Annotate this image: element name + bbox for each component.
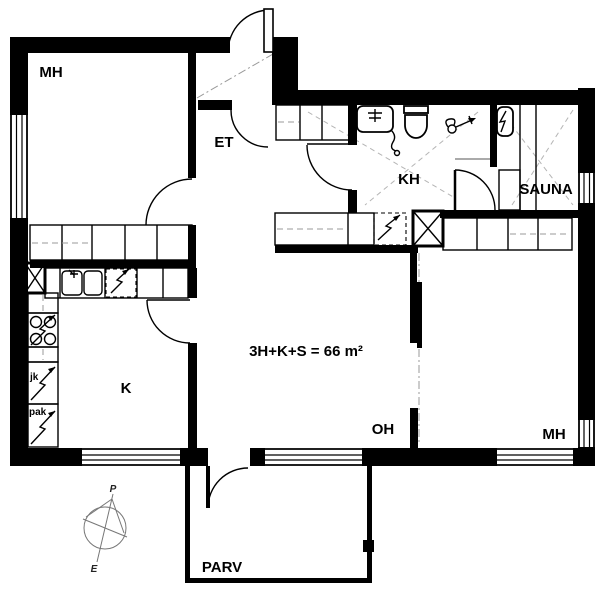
shower-icon	[446, 116, 476, 133]
kitchen-door	[147, 300, 190, 343]
room-label-bedroom-e: MH	[542, 426, 565, 443]
wall	[573, 448, 595, 466]
window	[579, 420, 594, 447]
area-label: 3H+K+S = 66 m²	[249, 343, 363, 360]
entry-sightline	[197, 50, 280, 98]
compass-north-label: P	[110, 484, 117, 495]
entry-door	[228, 9, 273, 52]
wall	[578, 88, 595, 173]
wall	[198, 100, 232, 110]
room-label-balcony: PARV	[202, 559, 242, 576]
entry-inner-door	[231, 110, 268, 147]
window	[579, 173, 594, 203]
freezer-label: pak	[29, 407, 47, 418]
wall	[440, 210, 578, 218]
room-label-bathroom: KH	[398, 171, 420, 188]
wall	[490, 105, 497, 167]
wall	[30, 260, 192, 268]
bathroom-door	[307, 144, 352, 190]
balcony-wall-post	[363, 540, 374, 552]
toilet-icon	[404, 106, 428, 138]
kitchen-counter	[45, 268, 188, 298]
wall	[188, 343, 197, 448]
wall	[410, 250, 417, 343]
window	[265, 449, 362, 465]
wall	[188, 268, 197, 298]
fridge-label: jk	[29, 372, 39, 383]
wall	[10, 37, 230, 53]
bathroom-fixtures	[357, 106, 490, 159]
wall	[348, 105, 357, 145]
bedroom-e-wardrobes	[443, 218, 572, 250]
floor-plan: MH ET KH SAUNA K OH MH PARV 3H+K+S = 66 …	[0, 0, 607, 590]
balcony-wall	[367, 466, 372, 583]
wall	[578, 203, 595, 420]
sauna-bench-step	[499, 170, 520, 210]
room-label-kitchen: K	[121, 380, 132, 397]
sink-icon	[357, 106, 400, 156]
wall	[410, 408, 418, 448]
window	[82, 449, 180, 465]
compass-south-label: E	[91, 564, 98, 575]
bedroom-nw-wardrobes	[30, 225, 192, 260]
room-label-living: OH	[372, 421, 395, 438]
doors	[146, 9, 495, 508]
window	[497, 449, 573, 465]
room-label-sauna: SAUNA	[519, 181, 573, 198]
stove-icon	[28, 313, 58, 347]
sauna-heater-icon	[497, 107, 513, 136]
wall	[362, 448, 497, 466]
balcony-door	[206, 466, 248, 508]
compass-rose: P E	[83, 484, 127, 575]
balcony-wall	[185, 578, 372, 583]
window	[11, 115, 27, 218]
fridge-unit	[28, 362, 58, 404]
wall	[298, 90, 578, 105]
duct-shaft	[413, 211, 443, 246]
windows	[11, 115, 594, 465]
bedroom-nw-door	[146, 179, 192, 225]
kitchen-tall-units	[28, 293, 58, 447]
balcony-wall	[185, 466, 190, 583]
wall	[250, 448, 265, 466]
wall	[272, 37, 298, 105]
sauna-door	[455, 170, 495, 210]
wall	[10, 218, 28, 466]
entry-closet	[276, 105, 349, 140]
sliding-door-leaf	[417, 282, 422, 348]
kitchen-fittings	[28, 268, 188, 447]
wall	[348, 190, 357, 213]
wall	[188, 53, 196, 178]
room-label-entry: ET	[214, 134, 233, 151]
wall	[180, 448, 208, 466]
hall-cabinet-row	[275, 213, 406, 245]
washing-machine-slot	[374, 213, 406, 245]
kitchen-sink-icon	[62, 270, 102, 295]
wall	[10, 448, 82, 466]
room-label-bedroom-nw: MH	[39, 64, 62, 81]
dishwasher-slot	[106, 269, 136, 297]
wall	[275, 245, 418, 253]
